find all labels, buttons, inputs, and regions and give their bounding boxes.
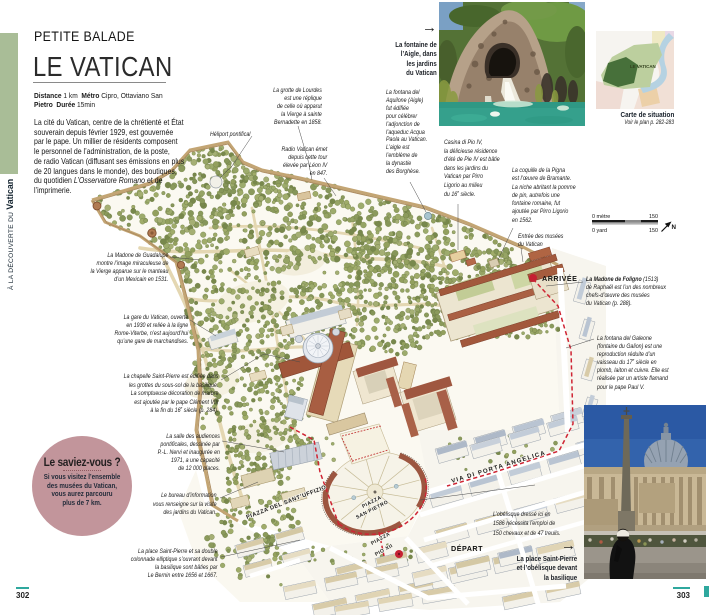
svg-text:0 mètre: 0 mètre [592, 214, 610, 220]
svg-text:150: 150 [649, 228, 658, 234]
svg-text:N: N [672, 224, 677, 231]
svg-text:150: 150 [649, 214, 658, 220]
svg-text:LE VATICAN: LE VATICAN [630, 64, 656, 69]
svg-text:0 yard: 0 yard [592, 228, 607, 234]
